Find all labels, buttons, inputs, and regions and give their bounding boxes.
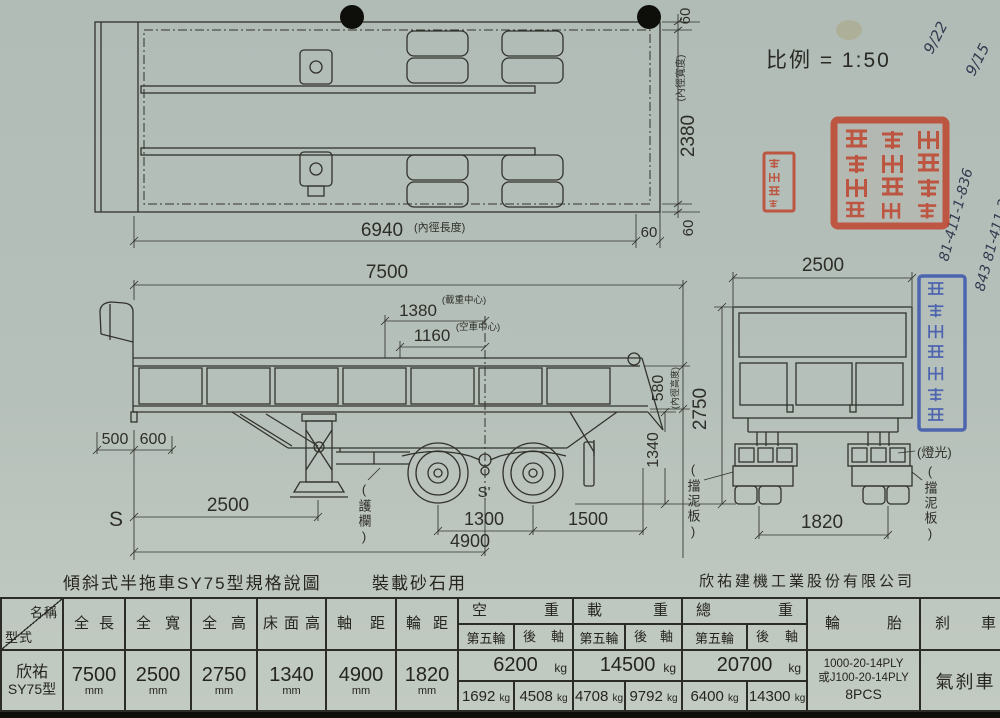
subheader-rear-axle: 後軸 (625, 624, 682, 650)
header-tire: 輪胎 (807, 598, 920, 650)
dim-rear-track: 1820 (801, 512, 843, 533)
dim-inner-height: 580 (650, 375, 667, 402)
side-view-drawing (100, 302, 663, 503)
handwritten-ref-2: 843 81-411-2-315 (972, 167, 1000, 293)
guard-rail-note: (護欄) (357, 482, 372, 546)
punch-hole-right (637, 5, 661, 29)
header-track: 輪距 (396, 598, 458, 650)
subheader-rear-axle: 後軸 (514, 624, 573, 650)
dim-empty-center: 1160 (414, 326, 451, 345)
dim-inner-length-note: (內徑長度) (414, 220, 465, 234)
header-load-weight: 載重 (573, 598, 682, 624)
header-gross-weight: 總重 (682, 598, 807, 624)
dim-overall-length: 7500 (366, 262, 408, 283)
inspection-seal-blue (919, 276, 965, 430)
cell-maker-model: 欣祐 SY75型 (1, 650, 63, 711)
personal-seal-red (764, 153, 794, 211)
tandem-mark: S' (478, 484, 491, 501)
cell-gross-fifth: 6400 kg (682, 681, 747, 711)
dim-inner-length: 6940 (361, 220, 403, 241)
mudflap-note-rear: (擋泥板) (923, 464, 938, 543)
subheader-rear-axle: 後軸 (747, 624, 807, 650)
dim-rear-width: 2500 (802, 255, 844, 276)
header-wheelbase: 軸距 (326, 598, 396, 650)
scale-note: 比例 = 1:50 (766, 44, 891, 74)
dim-wheelbase: 4900 (450, 531, 490, 551)
dim-axle-spread: 1300 (464, 509, 504, 529)
corner-header-cell: 名稱 型式 (1, 598, 63, 650)
scanned-spec-drawing: 60 2380 (內徑寬度) 6940 (內徑長度) 60 60 (0, 0, 1000, 718)
cell-floor-height: 1340mm (257, 650, 326, 711)
cell-gross-total: 20700kg (682, 650, 807, 681)
header-width: 全寬 (125, 598, 191, 650)
dim-front-b: 600 (140, 431, 167, 448)
header-floor-height: 床面高 (257, 598, 326, 650)
header-length: 全長 (63, 598, 125, 650)
cell-empty-fifth: 1692 kg (458, 681, 514, 711)
cell-empty-rear: 4508 kg (514, 681, 573, 711)
cell-width: 2500mm (125, 650, 191, 711)
header-brake: 刹車 (920, 598, 1000, 650)
rear-view-drawing (733, 307, 912, 504)
handwritten-date-2: 9/15 (962, 41, 994, 79)
dim-wall-top: 60 (677, 8, 694, 25)
top-view-drawing (95, 22, 660, 212)
paper-stain (836, 20, 862, 40)
handwritten-date-1: 9/22 (920, 19, 952, 57)
cell-empty-total: 6200kg (458, 650, 573, 681)
mudflap-note-left: (擋泥板) (686, 462, 701, 541)
dim-front-a: 500 (102, 431, 129, 448)
dim-overall-height: 2750 (690, 388, 711, 430)
cell-wheelbase: 4900mm (326, 650, 396, 711)
company-name: 欣祐建機工業股份有限公司 (699, 570, 915, 591)
dim-wall-end: 60 (641, 224, 658, 241)
dim-empty-center-note: (空車中心) (456, 321, 500, 333)
dim-inner-width-note: (內徑寬度) (674, 55, 687, 102)
lights-note: (燈光) (917, 445, 952, 460)
cell-load-fifth: 4708 kg (573, 681, 625, 711)
corner-label-name: 名稱 (30, 602, 58, 621)
cell-gross-rear: 14300 kg (747, 681, 807, 711)
kingpin-mark: S (109, 508, 123, 531)
drawing-title: 傾斜式半拖車SY75型規格說圖 (63, 569, 322, 594)
punch-hole-left (340, 5, 364, 29)
subheader-fifth-wheel: 第五輪 (573, 624, 625, 650)
dim-wall-bottom: 60 (680, 220, 697, 237)
cell-load-total: 14500kg (573, 650, 682, 681)
corner-label-model: 型式 (5, 627, 33, 646)
cell-length: 7500mm (63, 650, 125, 711)
top-view-dimensions (130, 14, 700, 248)
subheader-fifth-wheel: 第五輪 (458, 624, 514, 650)
side-view-dimensions (93, 280, 736, 560)
company-seal-red (834, 120, 946, 226)
cell-track: 1820mm (396, 650, 458, 711)
spec-table: 名稱 型式 全長 全寬 全高 床面高 軸距 輪距 空重 載重 總重 輪胎 刹車 … (0, 597, 1000, 712)
subheader-fifth-wheel: 第五輪 (682, 624, 747, 650)
cell-brake: 氣刹車 (920, 650, 1000, 711)
dim-gear-distance: 2500 (207, 495, 249, 516)
dim-load-center: 1380 (399, 301, 437, 320)
drawing-purpose: 裝載砂石用 (372, 569, 467, 594)
dim-load-center-note: (載重中心) (442, 294, 486, 306)
scan-edge-bottom (0, 712, 1000, 718)
dim-inner-height-note: (內徑高度) (669, 367, 680, 409)
dim-rear-distance: 1500 (568, 509, 608, 529)
dim-floor-height: 1340 (645, 432, 662, 468)
cell-load-rear: 9792 kg (625, 681, 682, 711)
cell-height: 2750mm (191, 650, 257, 711)
dim-inner-width: 2380 (678, 115, 699, 157)
header-empty-weight: 空重 (458, 598, 573, 624)
header-height: 全高 (191, 598, 257, 650)
cell-tire: 1000-20-14PLY 或J100-20-14PLY 8PCS (807, 650, 920, 711)
